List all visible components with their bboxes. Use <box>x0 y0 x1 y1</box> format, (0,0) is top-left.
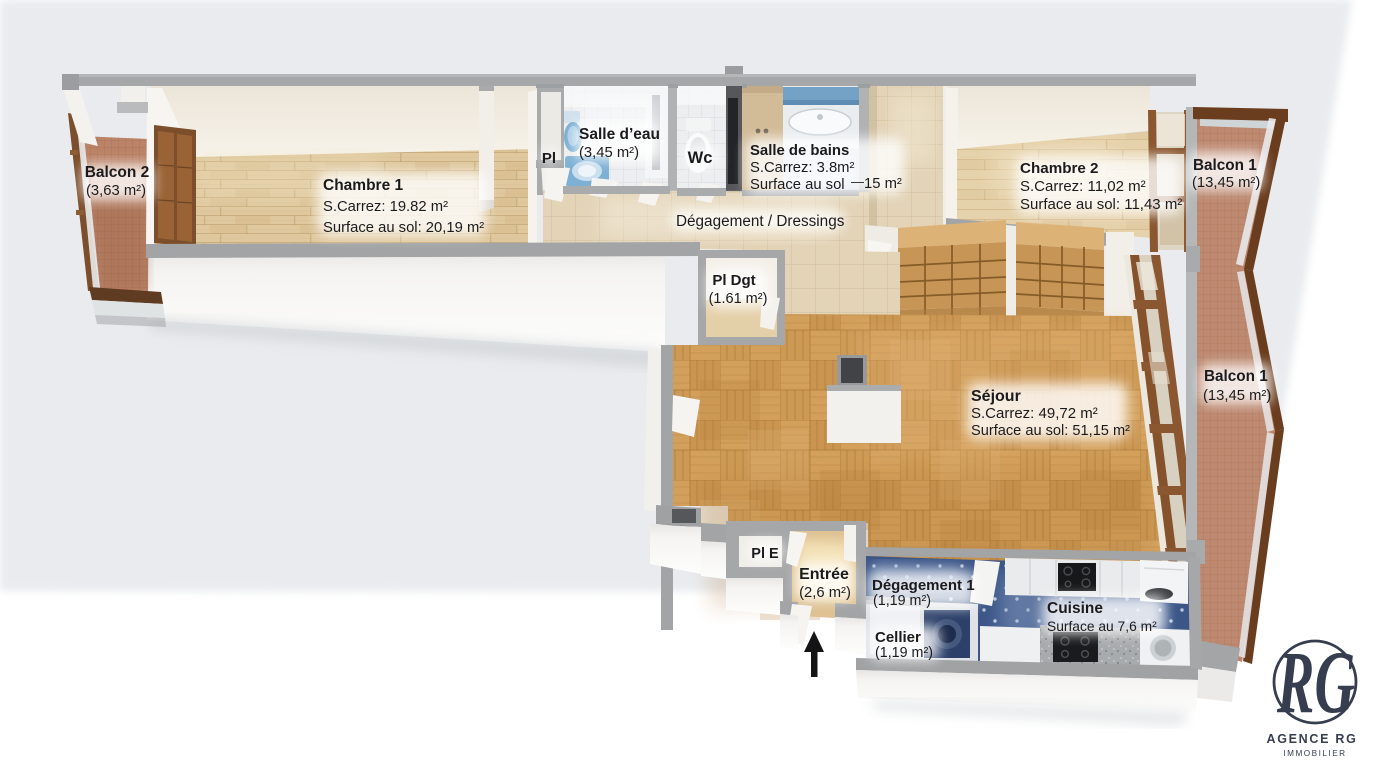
svg-text:S.Carrez: 49,72 m²: S.Carrez: 49,72 m² <box>971 405 1098 422</box>
svg-text:S.Carrez: 11,02 m²: S.Carrez: 11,02 m² <box>1020 178 1146 195</box>
svg-text:Cellier: Cellier <box>875 629 921 646</box>
svg-text:Wc: Wc <box>688 149 713 167</box>
svg-text:15 m²: 15 m² <box>864 176 902 192</box>
svg-text:(3,45 m²): (3,45 m²) <box>579 145 639 161</box>
svg-text:Balcon 2: Balcon 2 <box>85 164 150 181</box>
svg-text:(3,63 m²): (3,63 m²) <box>86 183 146 199</box>
svg-text:Entrée: Entrée <box>799 566 849 583</box>
svg-text:(2,6 m²): (2,6 m²) <box>799 585 851 601</box>
svg-text:Balcon 1: Balcon 1 <box>1204 368 1268 385</box>
svg-text:Salle d’eau: Salle d’eau <box>579 126 660 143</box>
svg-text:IMMOBILIER: IMMOBILIER <box>1283 749 1346 758</box>
svg-text:Surface au sol: 11,43 m²: Surface au sol: 11,43 m² <box>1020 196 1182 213</box>
svg-text:Surface au sol: Surface au sol <box>750 177 845 193</box>
svg-text:Dégagement / Dressings: Dégagement / Dressings <box>676 213 845 230</box>
svg-text:S.Carrez: 19.82 m²: S.Carrez: 19.82 m² <box>323 199 448 215</box>
svg-text:RG: RG <box>1276 634 1355 732</box>
svg-text:(13,45 m²): (13,45 m²) <box>1192 175 1260 191</box>
svg-text:Pl: Pl <box>542 150 556 167</box>
svg-text:Chambre 1: Chambre 1 <box>323 177 403 194</box>
svg-text:(13,45 m²): (13,45 m²) <box>1203 388 1271 404</box>
svg-text:Surface au 7,6 m²: Surface au 7,6 m² <box>1047 619 1157 634</box>
svg-text:Balcon 1: Balcon 1 <box>1193 157 1257 174</box>
svg-text:Séjour: Séjour <box>971 388 1021 405</box>
svg-text:Surface au sol: 51,15 m²: Surface au sol: 51,15 m² <box>971 423 1130 439</box>
svg-text:Salle de bains: Salle de bains <box>750 143 849 159</box>
svg-text:Chambre 2: Chambre 2 <box>1020 160 1099 177</box>
svg-text:Surface au sol: 20,19 m²: Surface au sol: 20,19 m² <box>323 220 484 236</box>
svg-text:(1,19 m²): (1,19 m²) <box>875 645 933 661</box>
svg-text:S.Carrez: 3.8m²: S.Carrez: 3.8m² <box>750 160 854 176</box>
svg-text:AGENCE RG: AGENCE RG <box>1266 732 1357 746</box>
svg-text:Pl Dgt: Pl Dgt <box>712 272 755 289</box>
svg-text:(1,19 m²): (1,19 m²) <box>873 593 931 609</box>
svg-text:(1.61 m²): (1.61 m²) <box>709 291 768 307</box>
svg-text:Pl E: Pl E <box>751 546 779 562</box>
svg-text:Cuisine: Cuisine <box>1047 600 1103 617</box>
svg-text:—: — <box>851 174 864 189</box>
svg-text:Dégagement 1: Dégagement 1 <box>872 577 975 594</box>
